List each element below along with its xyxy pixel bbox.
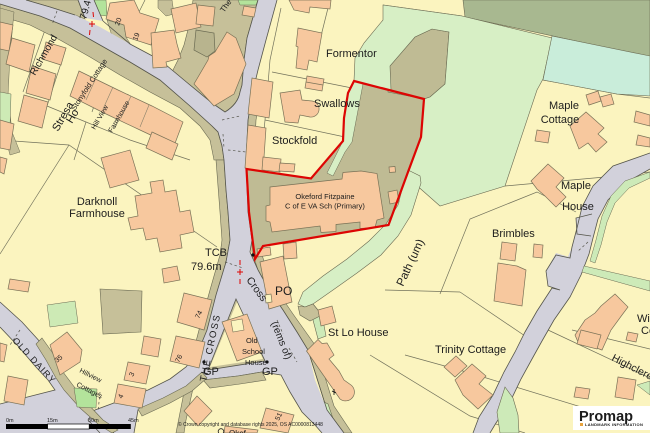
svg-text:15m: 15m bbox=[47, 418, 58, 424]
svg-text:Maple: Maple bbox=[549, 100, 579, 112]
svg-text:PO: PO bbox=[275, 284, 292, 298]
svg-text:Cott: Cott bbox=[641, 325, 650, 337]
svg-text:School: School bbox=[242, 347, 265, 356]
svg-text:Trinity Cottage: Trinity Cottage bbox=[435, 344, 506, 356]
svg-text:Old: Old bbox=[246, 336, 258, 345]
svg-text:Formentor: Formentor bbox=[326, 48, 377, 60]
svg-text:Stockfold: Stockfold bbox=[272, 135, 317, 147]
svg-text:Cottage: Cottage bbox=[541, 114, 580, 126]
svg-text:Darknoll: Darknoll bbox=[77, 196, 117, 208]
svg-text:Wind: Wind bbox=[637, 313, 650, 325]
svg-text:TCB: TCB bbox=[205, 247, 227, 259]
svg-text:House: House bbox=[562, 201, 594, 213]
svg-text:45m: 45m bbox=[128, 418, 139, 424]
svg-text:© Crown copyright and database: © Crown copyright and database rights 20… bbox=[178, 421, 323, 428]
svg-text:C of E VA Sch (Primary): C of E VA Sch (Primary) bbox=[285, 202, 365, 211]
svg-text:GP: GP bbox=[262, 366, 278, 378]
svg-text:House: House bbox=[245, 358, 267, 367]
svg-text:St Lo House: St Lo House bbox=[328, 327, 389, 339]
svg-text:LANDMARK INFORMATION: LANDMARK INFORMATION bbox=[585, 422, 643, 427]
svg-text:79.6m: 79.6m bbox=[191, 261, 222, 273]
svg-text:Swallows: Swallows bbox=[314, 98, 360, 110]
svg-text:30m: 30m bbox=[88, 418, 99, 424]
svg-text:Farmhouse: Farmhouse bbox=[69, 208, 125, 220]
svg-text:Brimbles: Brimbles bbox=[492, 228, 535, 240]
svg-text:Okeford Fitzpaine: Okeford Fitzpaine bbox=[295, 192, 354, 201]
svg-text:0m: 0m bbox=[6, 418, 14, 424]
svg-text:Maple: Maple bbox=[561, 180, 591, 192]
svg-text:Okef: Okef bbox=[229, 429, 247, 433]
